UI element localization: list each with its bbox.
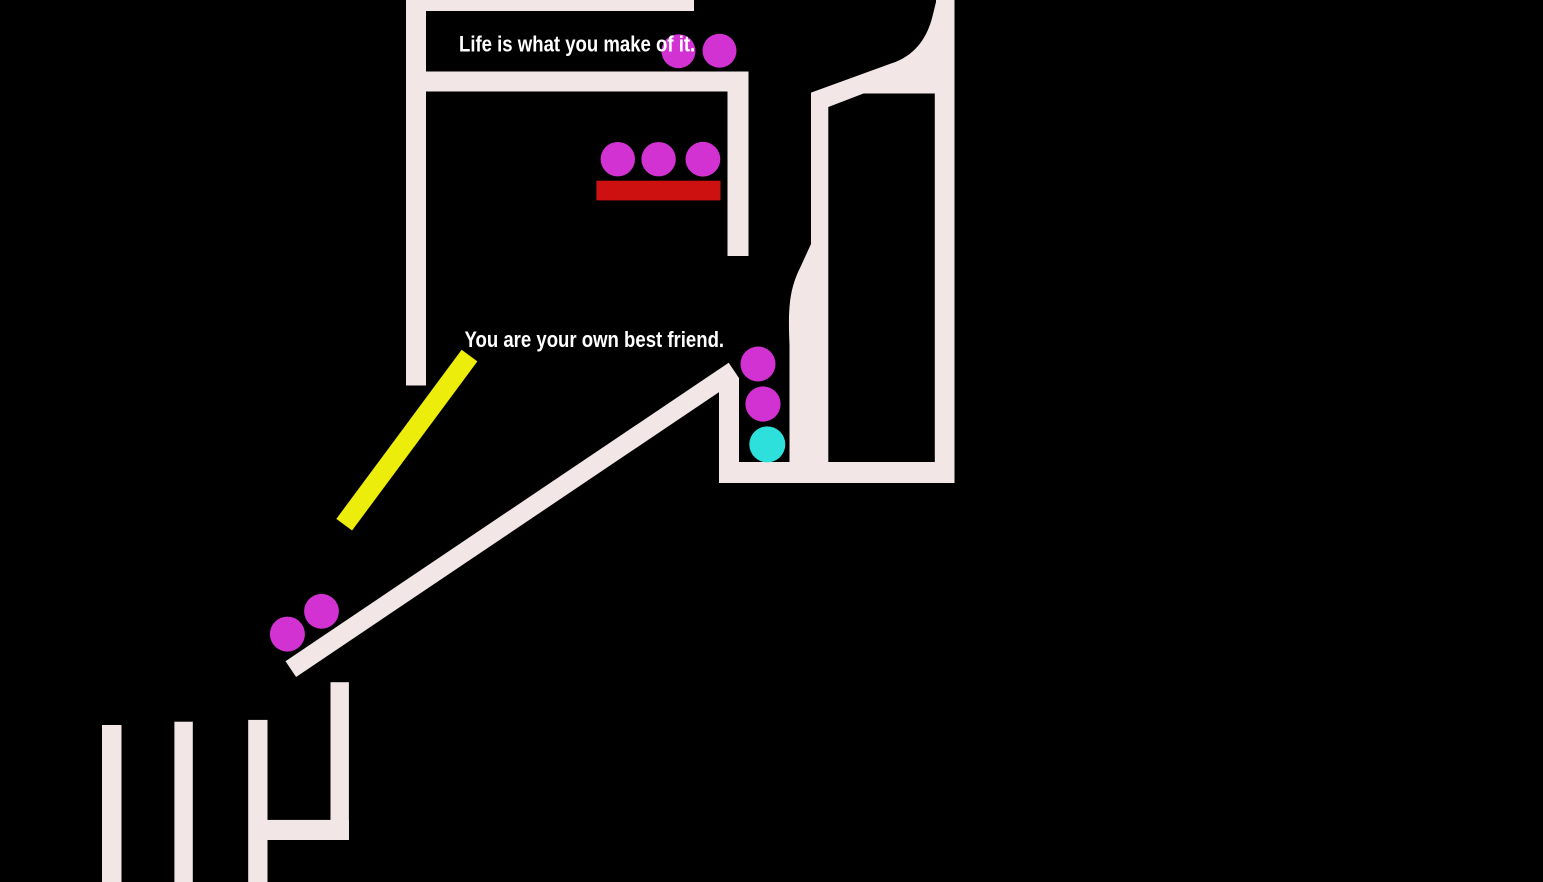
svg-text:You are your own best friend.: You are your own best friend.	[465, 327, 725, 352]
svg-text:Life is what you make of it.: Life is what you make of it.	[459, 32, 695, 57]
